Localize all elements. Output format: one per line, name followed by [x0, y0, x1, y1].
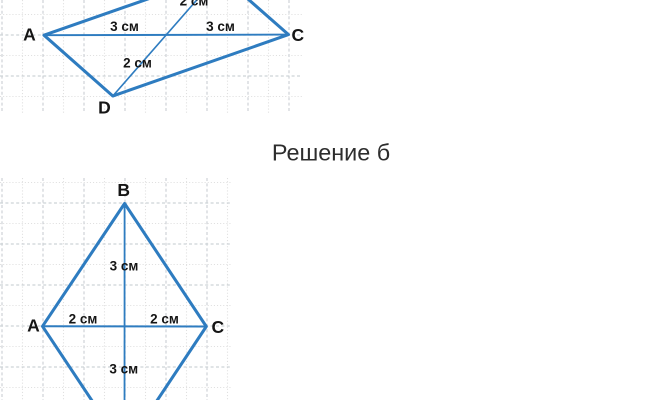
- svg-text:D: D: [98, 98, 111, 118]
- svg-text:A: A: [23, 24, 36, 44]
- svg-text:3 см: 3 см: [110, 259, 139, 274]
- svg-text:B: B: [117, 180, 130, 200]
- svg-text:C: C: [211, 317, 224, 337]
- svg-text:2 см: 2 см: [123, 56, 152, 71]
- svg-text:C: C: [291, 25, 304, 45]
- svg-text:3 см: 3 см: [206, 19, 235, 34]
- svg-text:Решение б: Решение б: [272, 140, 390, 166]
- svg-text:3 см: 3 см: [110, 19, 139, 34]
- svg-text:2 см: 2 см: [180, 0, 209, 9]
- svg-text:3 см: 3 см: [109, 362, 138, 377]
- svg-text:2 см: 2 см: [150, 311, 179, 326]
- svg-text:2 см: 2 см: [69, 311, 98, 326]
- svg-text:A: A: [27, 316, 40, 336]
